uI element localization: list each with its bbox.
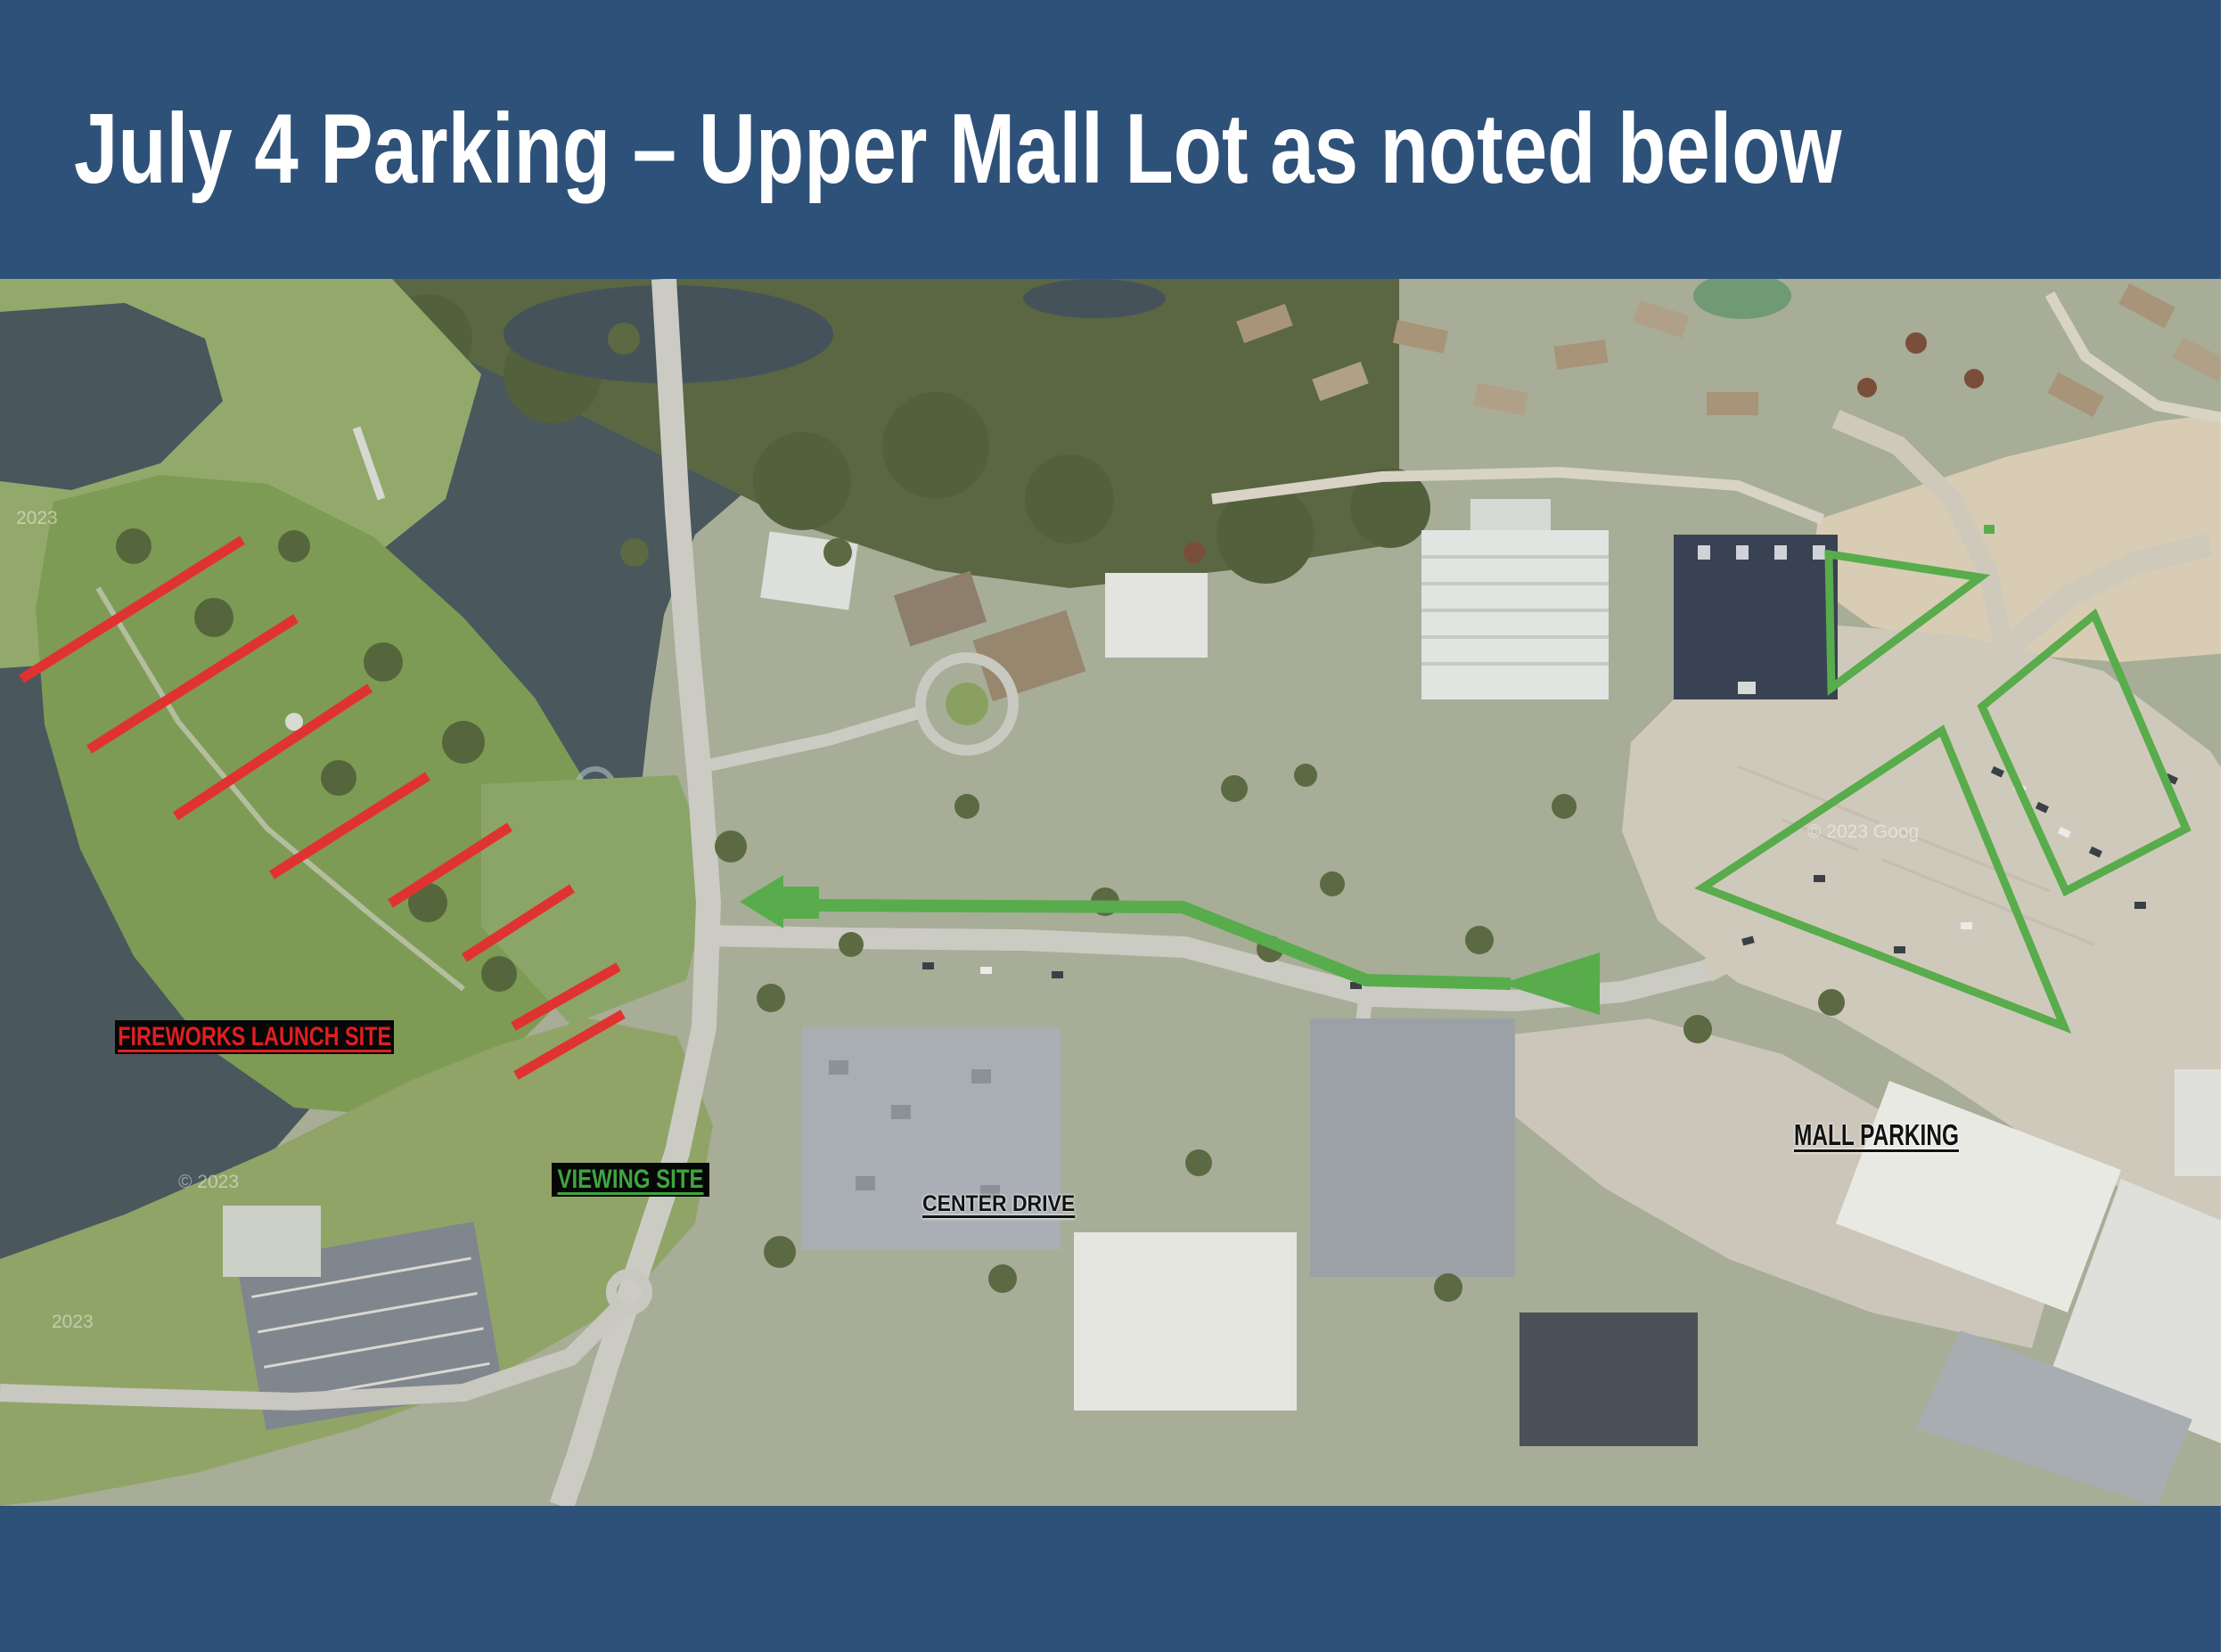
north-lot-triangle-outline <box>1829 554 1980 688</box>
fireworks-launch-site-text: FIREWORKS LAUNCH SITE <box>118 1024 391 1051</box>
east-lot-quad-outline <box>1982 615 2186 891</box>
map-annotations <box>0 279 2221 1506</box>
slide: July 4 Parking – Upper Mall Lot as noted… <box>0 0 2228 1652</box>
center-drive-label: CENTER DRIVE <box>922 1193 1075 1215</box>
mall-parking-label: MALL PARKING <box>1794 1120 1959 1149</box>
hatch-line <box>464 888 572 958</box>
hatch-line <box>390 827 510 904</box>
route-arrowhead-east <box>1501 953 1600 1015</box>
hatch-line <box>89 618 296 749</box>
route-arrow-tail <box>783 887 819 919</box>
slide-right-margin <box>2221 0 2228 1652</box>
hatch-line <box>176 688 370 816</box>
hatch-line <box>516 1014 623 1075</box>
hatch-line <box>272 776 428 875</box>
hatch-line <box>513 967 618 1026</box>
hatch-line <box>21 540 242 679</box>
page-title: July 4 Parking – Upper Mall Lot as noted… <box>74 100 1842 199</box>
footer-banner: Rev 6/28/23 <box>0 1506 2221 1652</box>
route-line <box>817 905 1511 984</box>
viewing-site-label: VIEWING SITE <box>552 1163 709 1197</box>
viewing-site-text: VIEWING SITE <box>557 1166 703 1193</box>
map-region: 2023© 20232023© 2023 Goog FIREWORKS LAUN… <box>0 279 2221 1506</box>
route-arrowhead-west <box>740 875 783 928</box>
header-banner: July 4 Parking – Upper Mall Lot as noted… <box>0 0 2221 279</box>
green-dot <box>1984 525 1995 534</box>
fireworks-launch-site-label: FIREWORKS LAUNCH SITE <box>115 1020 394 1054</box>
